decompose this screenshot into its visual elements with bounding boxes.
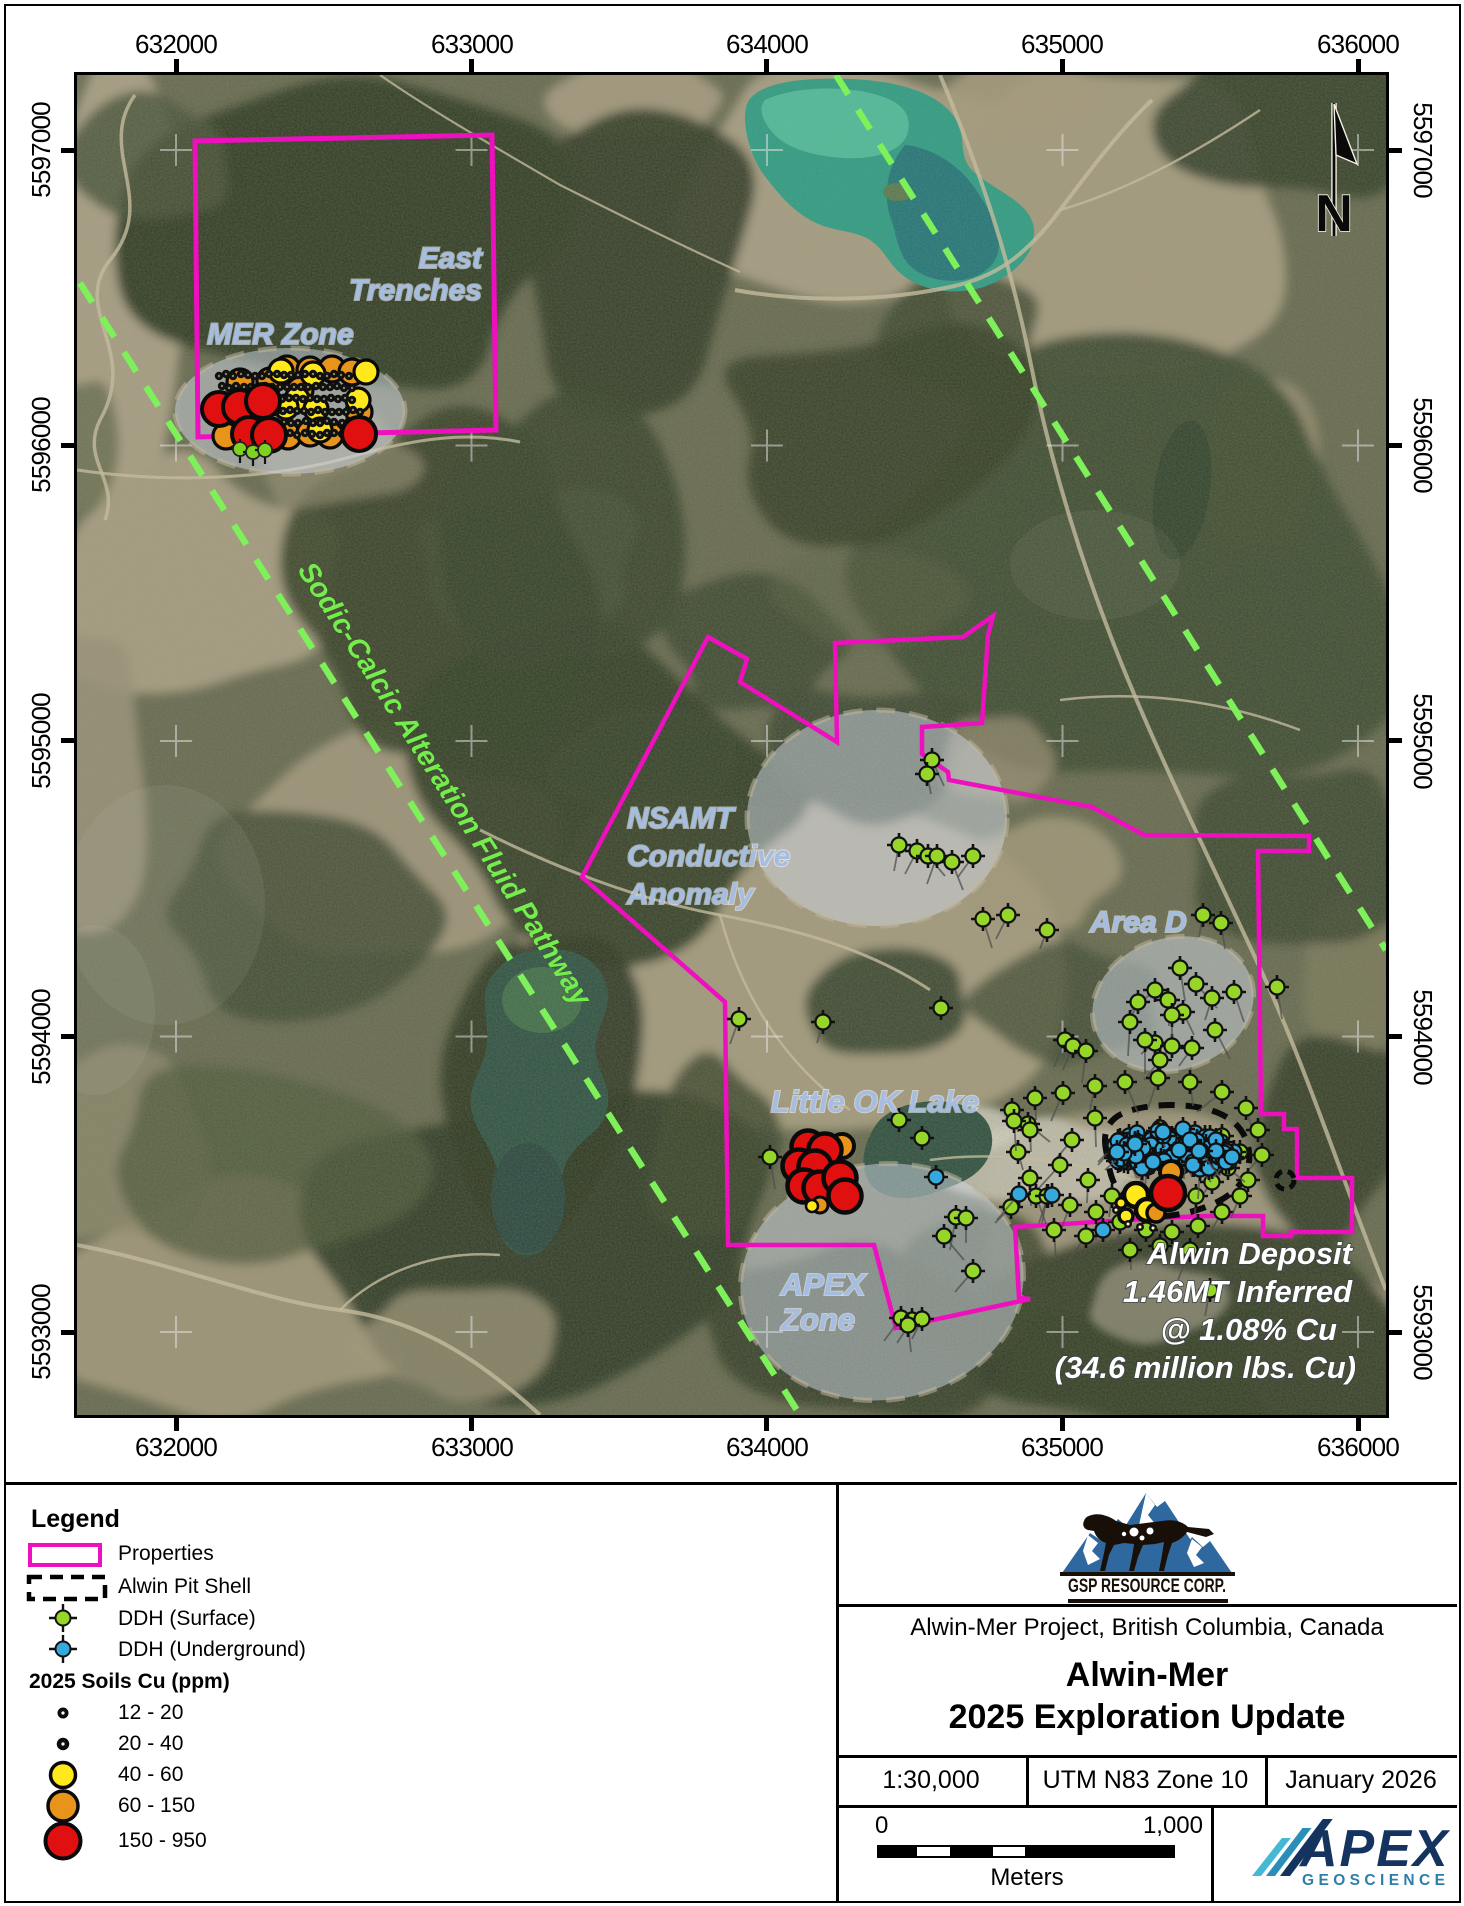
svg-text:GSP RESOURCE CORP.: GSP RESOURCE CORP. <box>1068 1576 1226 1597</box>
svg-text:GEOSCIENCE: GEOSCIENCE <box>1302 1872 1449 1889</box>
svg-text:APEX: APEX <box>1298 1820 1451 1878</box>
